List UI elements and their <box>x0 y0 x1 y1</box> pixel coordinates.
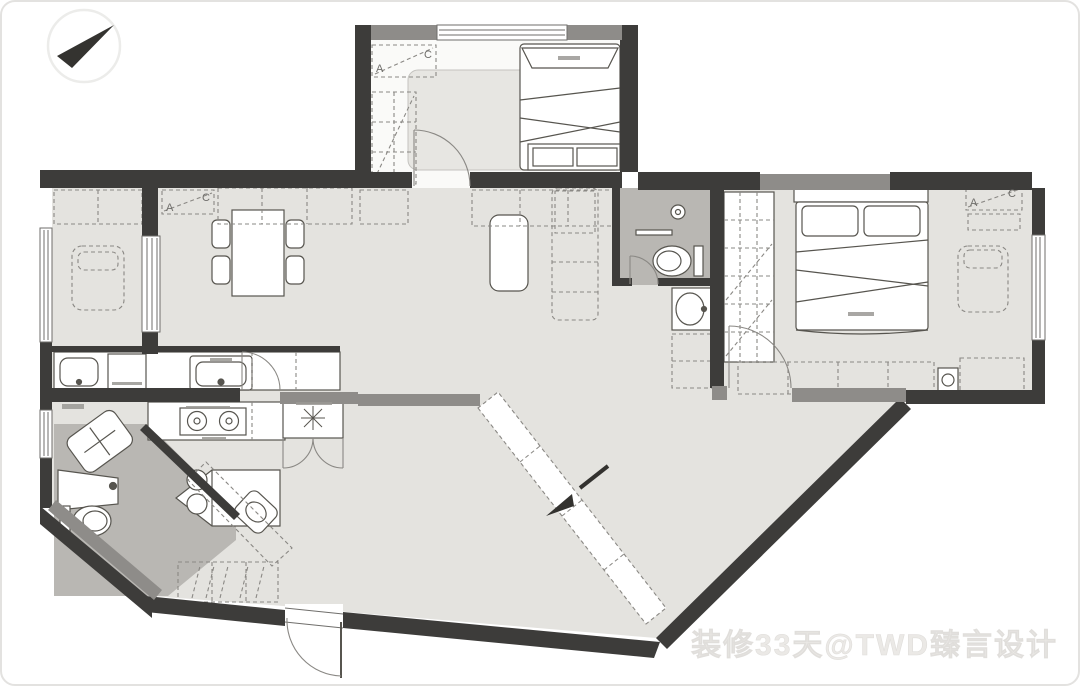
floor-plan-page: A C A C A C 装修33天@TWD臻言设计 <box>0 0 1080 686</box>
shower-fixture <box>110 483 117 490</box>
north-arrow-icon <box>48 10 120 82</box>
toilet-tank <box>694 246 703 276</box>
window-east-master <box>1032 235 1045 340</box>
sliding-door <box>142 236 160 332</box>
water-heater-label <box>62 404 84 409</box>
north-bedroom-bed <box>520 44 620 170</box>
bed-size-label <box>558 56 580 60</box>
window-north <box>437 25 567 40</box>
ac-label-a: A <box>376 63 384 75</box>
area-rug <box>408 70 532 170</box>
stove-label <box>202 437 226 440</box>
vanity-basin <box>676 293 704 325</box>
counter-label <box>186 406 230 409</box>
ac-label-a: A <box>970 197 978 209</box>
ac-label-c: C <box>1008 188 1016 200</box>
wall <box>40 170 358 188</box>
window-west-upper <box>40 228 52 342</box>
ac-label-c: C <box>424 49 432 61</box>
washer-label <box>112 382 142 385</box>
ac-label-a: A <box>166 202 174 214</box>
sink-label <box>210 358 232 361</box>
bed-size-label <box>848 312 874 316</box>
watermark: 装修33天@TWD臻言设计 <box>691 629 1058 662</box>
floor-plan-drawing: A C A C A C 装修33天@TWD臻言设计 <box>0 0 1080 686</box>
window-west-lower <box>40 410 52 458</box>
dining-table <box>232 210 284 296</box>
closet-label <box>296 402 332 405</box>
master-wardrobe <box>724 192 774 362</box>
ac-label-c: C <box>202 192 210 204</box>
kitchen-counter-north <box>54 352 340 390</box>
wall-gray <box>371 25 437 40</box>
